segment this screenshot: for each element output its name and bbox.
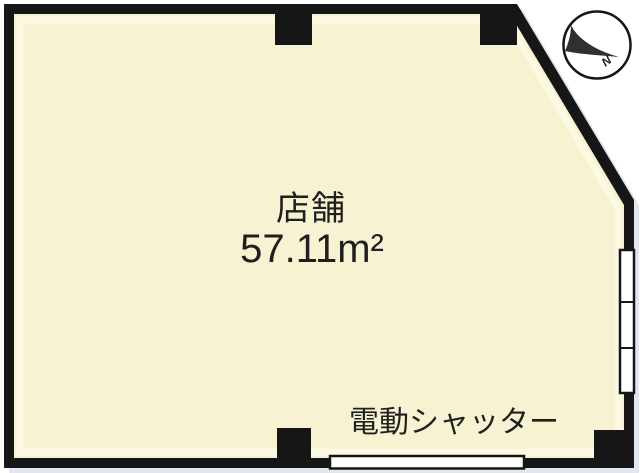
- pillar-top-left: [275, 4, 312, 45]
- shutter-opening: [330, 456, 524, 469]
- room-area-label: 57.11m²: [240, 229, 384, 269]
- pillar-bottom-center: [277, 428, 311, 468]
- compass-icon: N: [564, 12, 631, 79]
- floor-plan: N 店舗 57.11m² 電動シャッター: [0, 0, 640, 473]
- window-right: [620, 250, 634, 393]
- pillar-bottom-right: [594, 430, 634, 468]
- pillar-top-right: [480, 4, 517, 45]
- shutter-label: 電動シャッター: [349, 408, 559, 438]
- room-name-label: 店舗: [276, 192, 346, 226]
